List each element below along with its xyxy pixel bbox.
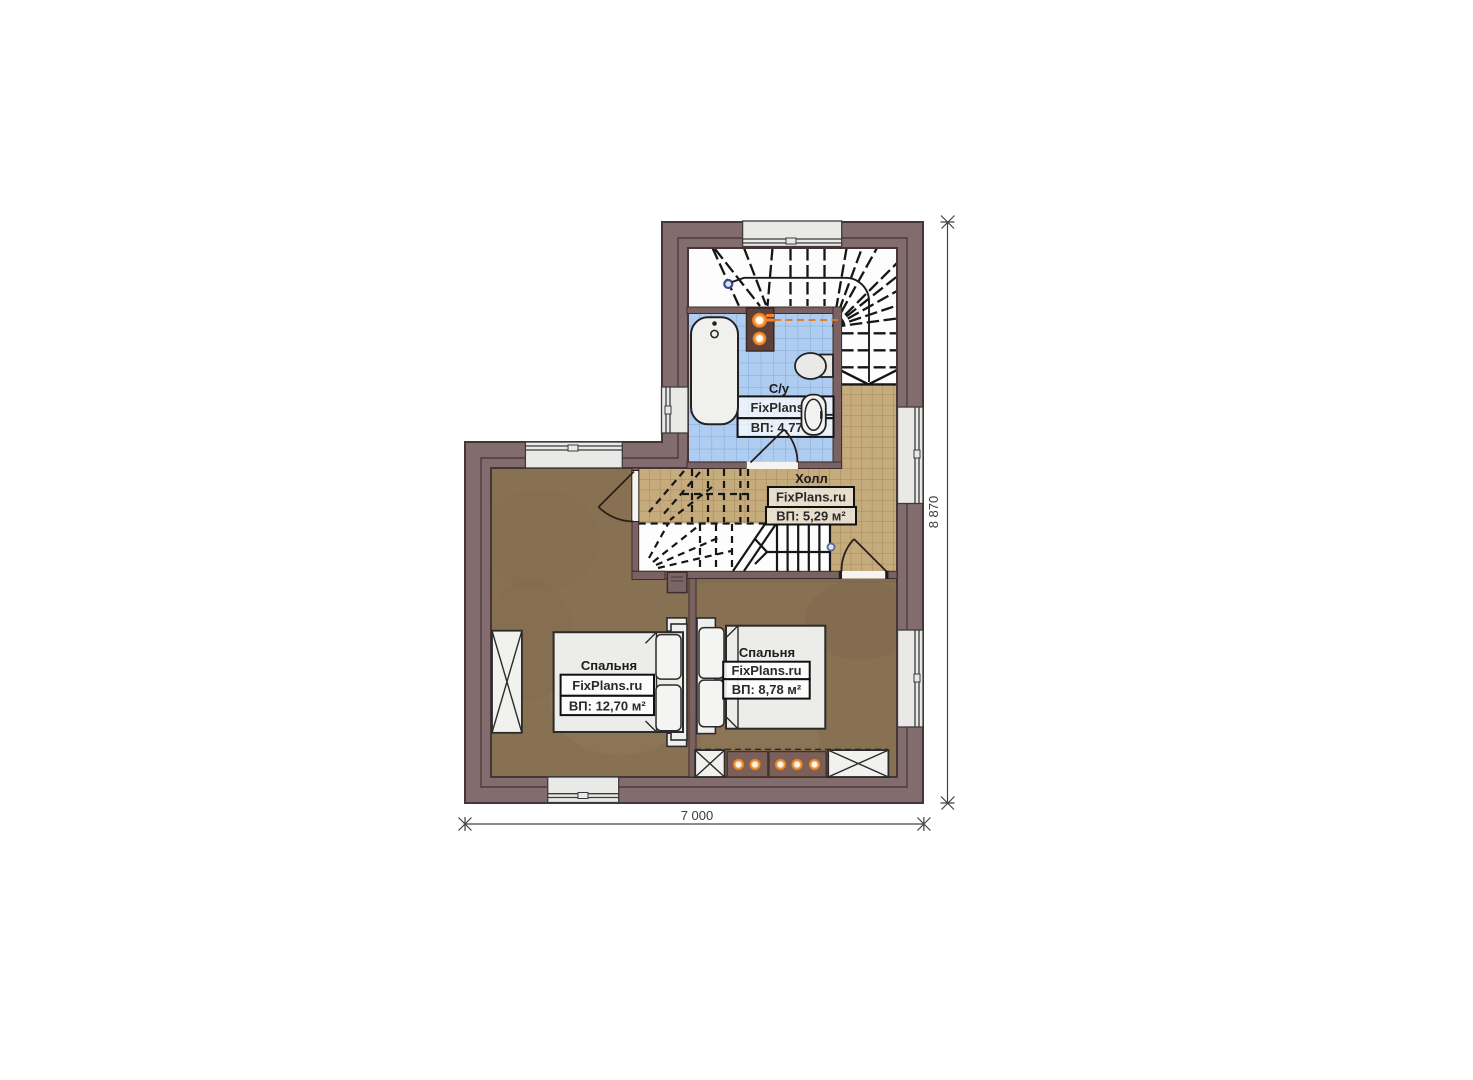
- svg-text:Холл: Холл: [795, 471, 828, 486]
- svg-text:Спальня: Спальня: [739, 645, 795, 660]
- svg-text:8 870: 8 870: [926, 496, 941, 529]
- svg-text:С/у: С/у: [769, 381, 790, 396]
- svg-text:ВП: 8,78 м²: ВП: 8,78 м²: [732, 682, 802, 697]
- svg-text:Спальня: Спальня: [581, 658, 637, 673]
- svg-text:FixPlans.ru: FixPlans.ru: [731, 663, 801, 678]
- svg-text:FixPlans.ru: FixPlans.ru: [776, 490, 846, 505]
- svg-text:ВП: 12,70 м²: ВП: 12,70 м²: [569, 699, 646, 714]
- svg-text:ВП: 5,29 м²: ВП: 5,29 м²: [776, 509, 846, 524]
- svg-text:7 000: 7 000: [681, 808, 714, 823]
- svg-text:FixPlans.ru: FixPlans.ru: [572, 678, 642, 693]
